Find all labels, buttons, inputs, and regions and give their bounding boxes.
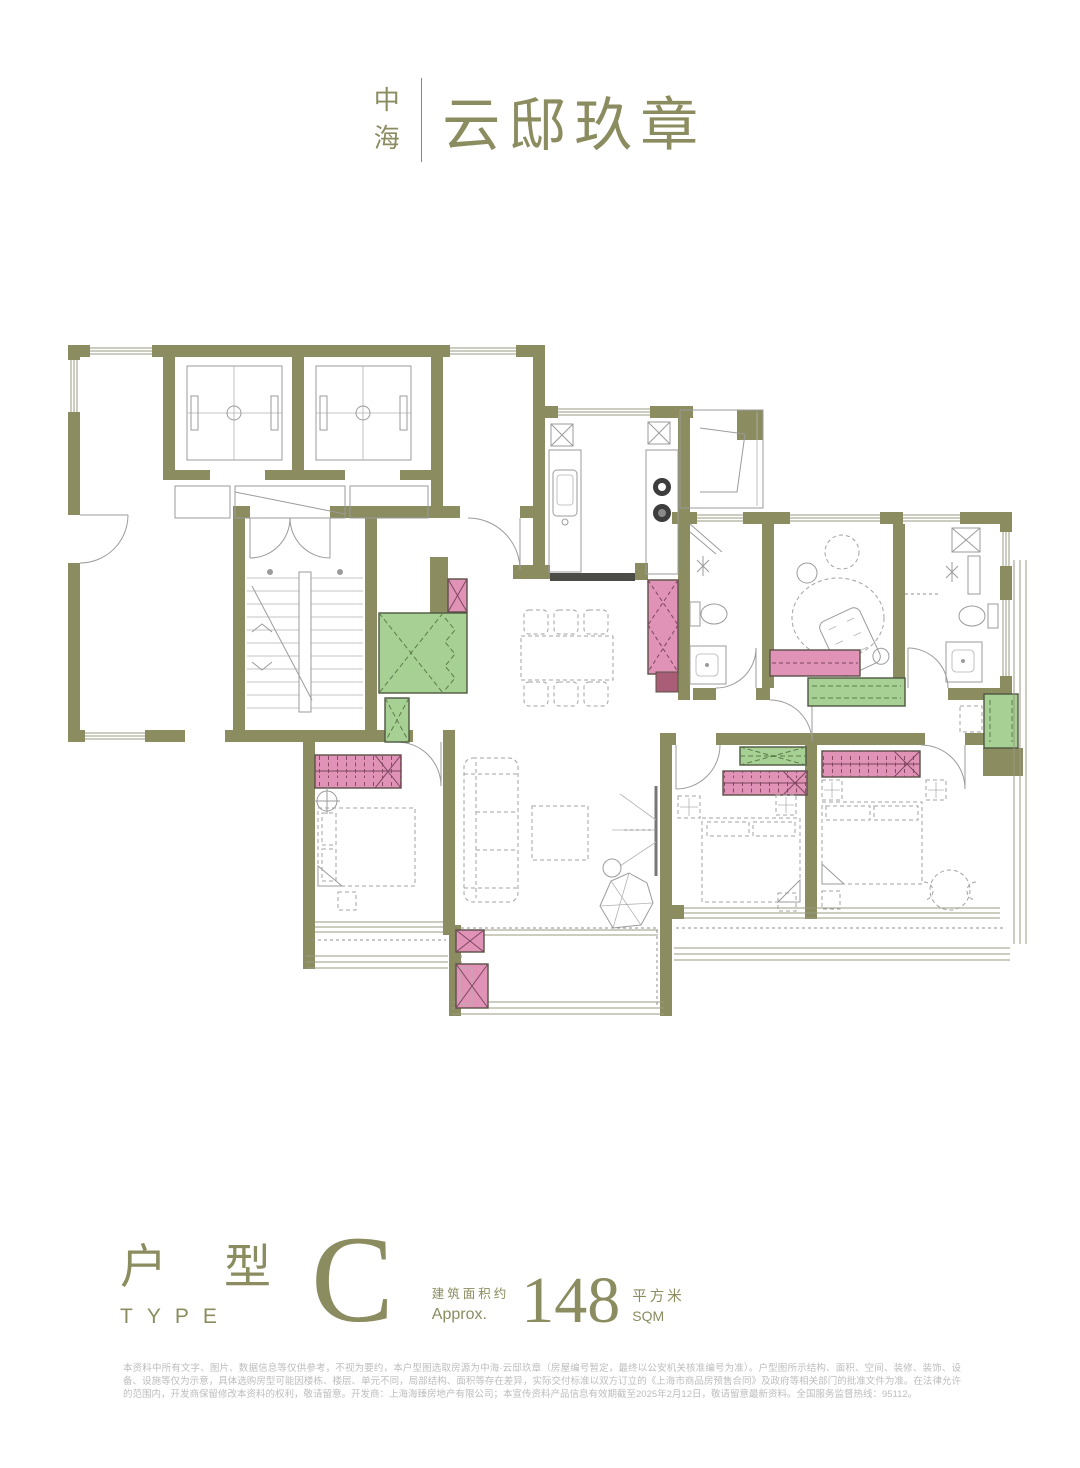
dining-table [521,636,613,680]
type-label-en: TYPE [120,1305,293,1329]
toilet-icon [690,602,727,626]
downlight-icon [314,788,340,814]
door-bath2 [908,648,948,688]
window-master-top-2 [790,512,880,524]
bed [318,808,415,910]
dresser [315,755,401,788]
bed [822,802,922,884]
closet-column [385,698,409,742]
door-bedroom3 [921,745,965,789]
window-lobby-bottom [85,730,145,742]
washer-icon [456,930,484,952]
foyer-cabinet-small [448,579,467,612]
window-core-top-right [450,345,516,357]
door-unit-entry [468,518,520,570]
dresser [723,771,807,795]
sofa [464,758,518,902]
shower-icon [697,556,709,576]
living-room [464,758,656,928]
floor-outlet [776,795,796,815]
door-lobby-entry [68,515,128,563]
elevator-icon [316,366,411,460]
master-bench [770,650,860,676]
shower-icon [946,562,958,582]
bed [702,818,800,902]
window-master-top-1 [697,512,743,524]
kitchen-counter-left [549,450,581,572]
fridge-icon [648,580,678,692]
foyer-wardrobe [379,613,467,693]
window-core-top-left [90,345,152,357]
window-master-top-3 [903,512,960,524]
window-right-wall-2 [1000,600,1012,676]
staircase [247,569,363,712]
stove-icon [653,478,671,522]
window-kitchen-top [558,406,650,418]
dining-area [379,579,613,706]
type-letter: C [311,1232,394,1329]
door-core-double [250,518,330,558]
door-bath1 [716,648,756,688]
bathroom-1 [690,524,727,684]
kitchen-sink-icon [553,470,577,525]
ac-box-icon [952,528,980,552]
legal-disclaimer: 本资料中所有文字、图片、数据信息等仅供参考，不视为要约，本户型图选取房源为中海·… [123,1362,961,1401]
round-table [924,870,976,910]
sink-icon [946,642,982,682]
bathroom-2 [905,528,998,682]
bedroom-1 [314,698,415,910]
coffee-table [532,806,588,860]
floor-outlet [822,891,840,909]
balcony-living [452,928,664,1014]
area-prefix-en: Approx. [432,1305,510,1325]
window-right-wall-1 [1000,532,1012,566]
washer-icon [456,964,488,1008]
type-label-zh: 户 型 [120,1228,293,1297]
plant-icon [600,859,653,928]
bedroom-2 [678,747,807,902]
dresser [822,751,920,777]
balcony-bedroom1 [306,940,448,968]
nightstand [926,780,946,800]
area-unit-zh: 平方米 [632,1289,685,1306]
elevator-icon [187,366,282,460]
door-bedroom2 [676,745,720,789]
nightstand [678,796,700,818]
toilet-icon [959,604,998,628]
master-closet [808,678,905,706]
area-value: 148 [521,1276,620,1326]
kitchen-base-cabinet [550,573,635,581]
window-living-south [461,930,658,935]
closet [740,747,806,765]
area-prefix-zh: 建筑面积约 [432,1287,510,1303]
flue-icon [551,424,573,446]
sink-icon [690,646,726,684]
window-core-left [68,360,80,412]
area-unit-en: SQM [632,1308,685,1325]
nightstand [822,780,842,800]
unit-type-block: 户 型 TYPE C 建筑面积约 Approx. 148 平方米 SQM [120,1228,685,1329]
flue-icon [648,422,670,444]
dining-chairs [524,610,608,706]
master-room [770,535,905,706]
window-bedroom1-south [315,922,443,932]
